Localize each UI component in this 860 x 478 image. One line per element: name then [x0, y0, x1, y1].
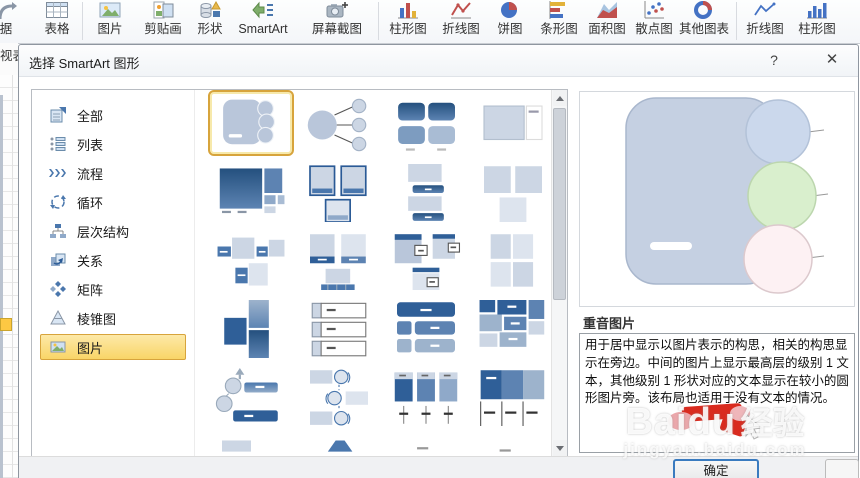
ribbon-button-sparkline-column[interactable]: 柱形图: [791, 0, 843, 42]
preview-panel: 重音图片 用于居中显示以图片表示的构思，相关的构思显示在旁边。中间的图片上显示最…: [579, 89, 857, 457]
column-chart-icon: [396, 0, 420, 20]
layout-gallery: [206, 90, 552, 456]
pivottable-icon: [0, 0, 18, 20]
smartart-thumbnail-picture-mosaic[interactable]: [470, 296, 552, 362]
pyramid-icon: [49, 309, 67, 327]
gallery-scrollbar[interactable]: [551, 90, 567, 456]
preview-graphic: [579, 91, 855, 307]
picture-category-icon: [49, 338, 67, 356]
cursor-arrow-icon: [744, 414, 768, 445]
ribbon-button-area-chart[interactable]: 面积图: [581, 0, 633, 42]
scatter-chart-icon: [642, 0, 666, 20]
cancel-button-partial[interactable]: [825, 459, 859, 478]
smartart-thumbnail-partial[interactable]: [296, 432, 382, 456]
ribbon-button-sparkline-line[interactable]: 折线图: [739, 0, 791, 42]
ribbon-button-other-charts[interactable]: 其他图表: [676, 0, 732, 42]
smartart-thumbnail-vertical-picture-list[interactable]: [383, 364, 469, 430]
sidebar-item-picture[interactable]: 图片: [40, 334, 186, 360]
ribbon-group-separator: [82, 2, 83, 40]
smartart-thumbnail-titled-picture-cards[interactable]: [296, 160, 382, 226]
ribbon-button-table[interactable]: 表格: [34, 0, 80, 42]
window-edge: [0, 95, 3, 478]
cycle-icon: [49, 193, 67, 211]
ribbon-button-picture[interactable]: 图片: [86, 0, 134, 42]
ribbon-group-separator: [736, 2, 737, 40]
ok-button[interactable]: 确定: [673, 459, 759, 478]
list-icon: [49, 135, 67, 153]
dialog-titlebar[interactable]: 选择 SmartArt 图形 ? ✕: [19, 45, 858, 77]
ribbon: 据 表格 图片 剪贴画 形状 SmartArt 屏幕截图: [0, 0, 860, 44]
ribbon-button-column-chart[interactable]: 柱形图: [382, 0, 434, 42]
relationship-icon: [49, 251, 67, 269]
smartart-thumbnail-bubble-picture-list[interactable]: [208, 228, 294, 294]
smartart-thumbnail-circular-picture-callout[interactable]: [296, 92, 382, 158]
pink-highlight-annotation: [668, 412, 694, 430]
smartart-thumbnail-accent-process-bars[interactable]: [383, 296, 469, 362]
smartart-thumbnail-picture-blocks[interactable]: [383, 92, 469, 158]
scroll-down-button[interactable]: [553, 440, 567, 456]
ribbon-button-shapes[interactable]: 形状: [186, 0, 234, 42]
smartart-thumbnail-picture-strips[interactable]: [470, 364, 552, 430]
ribbon-button-pivottable[interactable]: 据: [0, 0, 26, 42]
screenshot-stage: 据 表格 图片 剪贴画 形状 SmartArt 屏幕截图: [0, 0, 860, 478]
sparkline-column-icon: [805, 0, 829, 20]
clipart-icon: [151, 0, 175, 20]
screenshot-icon: [325, 0, 349, 20]
matrix-icon: [49, 280, 67, 298]
worksheet-sliver: 视表: [0, 43, 18, 478]
sidebar-item-process[interactable]: 流程: [40, 160, 186, 186]
ribbon-button-line-chart[interactable]: 折线图: [435, 0, 487, 42]
sidebar-item-list[interactable]: 列表: [40, 131, 186, 157]
worksheet-grid: [0, 75, 19, 478]
ribbon-group-separator: [378, 2, 379, 40]
smartart-thumbnail-captioned-pictures[interactable]: [296, 228, 382, 294]
smartart-thumbnail-snapshot-picture-list[interactable]: [383, 228, 469, 294]
smartart-thumbnail-large-picture-list[interactable]: [208, 160, 294, 226]
sidebar-item-all[interactable]: 全部: [40, 102, 186, 128]
pie-chart-icon: [498, 0, 522, 20]
other-charts-icon: [692, 0, 716, 20]
category-and-layout-listbox: 全部 列表 流程 循环 层次结构: [31, 89, 568, 457]
smartart-thumbnail-ascending-picture-blocks[interactable]: [208, 296, 294, 362]
scroll-up-button[interactable]: [553, 90, 567, 106]
sidebar-item-matrix[interactable]: 矩阵: [40, 276, 186, 302]
chevron-down-icon: [556, 446, 564, 451]
shapes-icon: [198, 0, 222, 20]
smartart-thumbnail-partial[interactable]: [208, 432, 294, 456]
sidebar-item-cycle[interactable]: 循环: [40, 189, 186, 215]
smartart-thumbnail-picture-grid-pyramid[interactable]: [470, 160, 552, 226]
smartart-thumbnail-accent-picture[interactable]: [208, 90, 294, 156]
area-chart-icon: [595, 0, 619, 20]
smartart-thumbnail-ascending-picture-accent-process[interactable]: [208, 364, 294, 430]
picture-icon: [98, 0, 122, 20]
highlighted-cell[interactable]: [0, 318, 12, 331]
preview-description: 用于居中显示以图片表示的构思，相关的构思显示在旁边。中间的图片上显示最高层的级别…: [579, 333, 855, 453]
chevron-up-icon: [556, 96, 564, 101]
sidebar-item-pyramid[interactable]: 棱锥图: [40, 305, 186, 331]
sparkline-line-icon: [753, 0, 777, 20]
grid-line: [12, 75, 13, 478]
scrollbar-thumb[interactable]: [553, 108, 566, 300]
ribbon-button-bar-chart[interactable]: 条形图: [533, 0, 585, 42]
hierarchy-icon: [49, 222, 67, 240]
close-button[interactable]: ✕: [819, 50, 845, 70]
smartart-thumbnail-partial[interactable]: [383, 432, 469, 456]
sidebar-item-relationship[interactable]: 关系: [40, 247, 186, 273]
smartart-thumbnail-vertical-process-with-circles[interactable]: [296, 364, 382, 430]
bar-chart-icon: [547, 0, 571, 20]
smartart-icon: [251, 0, 275, 20]
dialog-title: 选择 SmartArt 图形: [29, 53, 140, 72]
table-icon: [45, 0, 69, 20]
smartart-thumbnail-horizontal-picture-list[interactable]: [296, 296, 382, 362]
smartart-thumbnail-picture-grid[interactable]: [470, 228, 552, 294]
ribbon-button-smartart[interactable]: SmartArt: [230, 0, 296, 42]
process-icon: [49, 164, 67, 182]
dialog-button-strip: 确定: [19, 456, 858, 478]
ribbon-button-pie-chart[interactable]: 饼图: [488, 0, 532, 42]
all-layouts-icon: [49, 106, 67, 124]
ribbon-button-scatter-chart[interactable]: 散点图: [628, 0, 680, 42]
preview-title: 重音图片: [583, 313, 635, 332]
category-sidebar: 全部 列表 流程 循环 层次结构: [32, 90, 195, 456]
ribbon-button-clipart[interactable]: 剪贴画: [134, 0, 192, 42]
smartart-thumbnail-alternating-picture-blocks[interactable]: [383, 160, 469, 226]
line-chart-icon: [449, 0, 473, 20]
smartart-thumbnail-partial[interactable]: [470, 432, 552, 456]
ribbon-button-screenshot[interactable]: 屏幕截图: [302, 0, 372, 42]
smartart-thumbnail-framed-picture[interactable]: [470, 92, 552, 158]
help-button[interactable]: ?: [761, 50, 787, 70]
sidebar-item-hierarchy[interactable]: 层次结构: [40, 218, 186, 244]
